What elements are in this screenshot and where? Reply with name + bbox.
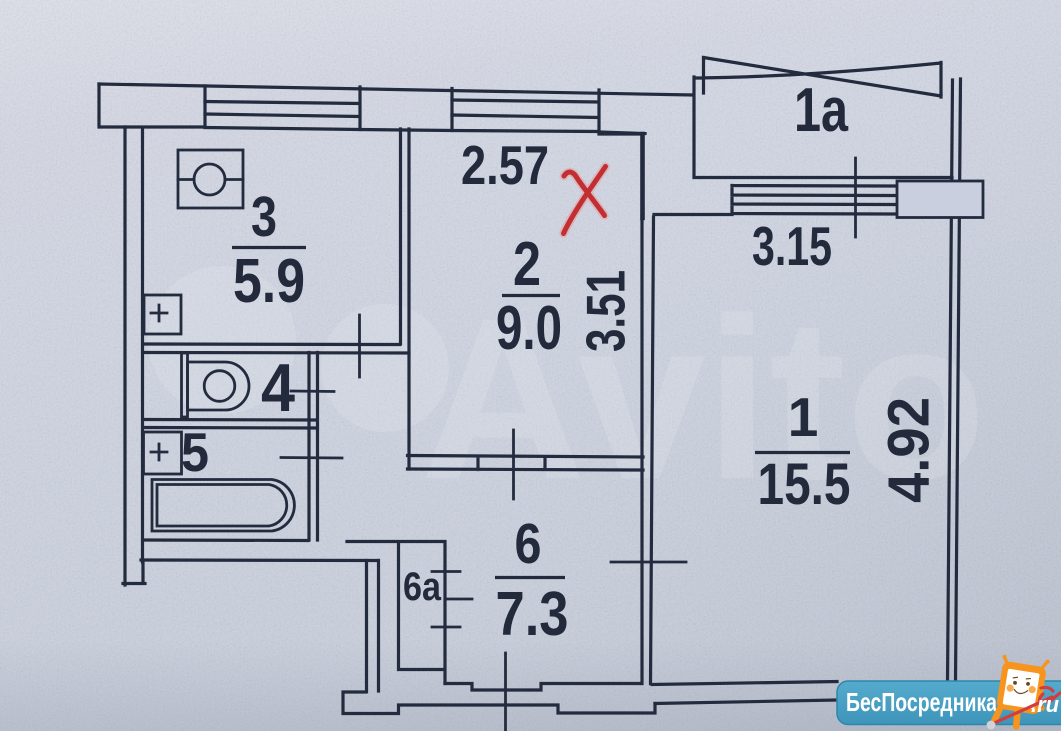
svg-text:15.5: 15.5 xyxy=(758,452,851,517)
svg-text:.ru: .ru xyxy=(1031,692,1060,717)
svg-text:БесПосредника: БесПосредника xyxy=(846,687,997,717)
svg-text:6: 6 xyxy=(515,512,542,576)
svg-text:5: 5 xyxy=(181,421,209,483)
svg-text:3: 3 xyxy=(251,185,277,249)
svg-text:4.92: 4.92 xyxy=(876,397,941,503)
svg-text:9.0: 9.0 xyxy=(496,294,562,363)
svg-text:1a: 1a xyxy=(794,76,848,145)
svg-text:3.51: 3.51 xyxy=(575,270,637,352)
svg-text:3.15: 3.15 xyxy=(752,215,832,277)
svg-text:7.3: 7.3 xyxy=(496,580,569,649)
svg-text:4: 4 xyxy=(261,350,295,426)
svg-text:2.57: 2.57 xyxy=(461,134,549,196)
svg-text:2: 2 xyxy=(513,230,541,299)
svg-text:5.9: 5.9 xyxy=(233,247,305,316)
svg-text:6a: 6a xyxy=(403,565,442,609)
svg-text:1: 1 xyxy=(788,386,819,448)
